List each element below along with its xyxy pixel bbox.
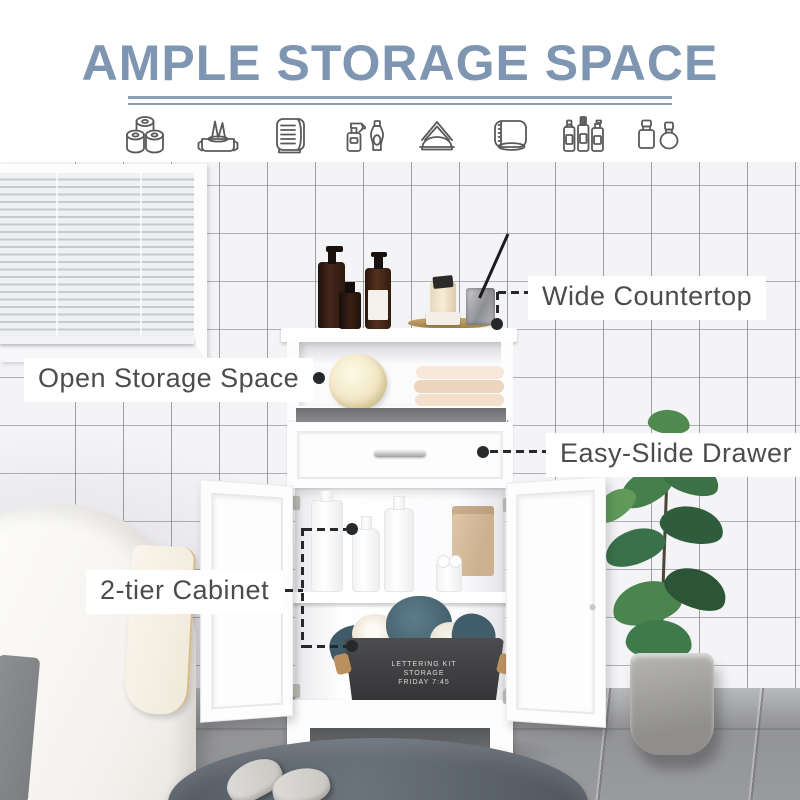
toilet-paper-icon (121, 112, 169, 160)
toiletry-bottles-icon (559, 112, 607, 160)
bottle-label (368, 290, 388, 320)
shelf-gap-shadow (296, 408, 506, 422)
candle-label (432, 275, 453, 289)
callout-dot-easy-slide-drawer (477, 446, 489, 458)
cream-loofah (329, 354, 387, 410)
white-pump-bottle (311, 500, 343, 592)
perfume-bottles-icon (632, 112, 680, 160)
folded-towel (416, 366, 504, 379)
storage-box-icon (267, 112, 315, 160)
hinge (292, 496, 300, 509)
page-title: AMPLE STORAGE SPACE (0, 34, 800, 92)
white-bottle (352, 528, 380, 592)
plant-pot (630, 653, 714, 755)
door-knob (590, 604, 596, 610)
blind-cord (56, 173, 58, 342)
countertop (281, 328, 517, 342)
product-photo: LETTERING KIT STORAGE FRIDAY 7:45 (0, 162, 800, 800)
callout-dot-two-tier-bottom (346, 640, 358, 652)
napkin-holder-icon (413, 112, 461, 160)
blind-rail (0, 336, 194, 344)
white-bottle (384, 508, 414, 592)
folded-towel (414, 380, 504, 393)
pump-nozzle (371, 252, 387, 257)
callout-easy-slide-drawer: Easy-Slide Drawer (546, 433, 800, 477)
blind-cord (140, 173, 142, 342)
callout-two-tier-cabinet: 2-tier Cabinet (86, 570, 283, 614)
pump-head (320, 490, 333, 502)
basket-stamp-line: LETTERING KIT (374, 660, 474, 669)
bottle-neck (393, 496, 405, 510)
callout-open-storage: Open Storage Space (24, 358, 313, 402)
callout-line-two-tier-cabinet (301, 528, 304, 648)
blind-slats (0, 173, 194, 342)
wet-wipes-icon (194, 112, 242, 160)
folded-towel (415, 394, 504, 406)
cleaning-bottles-icon (340, 112, 388, 160)
hinge (292, 684, 300, 697)
callout-line-wide-countertop (496, 292, 499, 320)
basket-stamp: LETTERING KIT STORAGE FRIDAY 7:45 (374, 660, 474, 687)
plant-leaf (600, 521, 669, 572)
callout-dot-wide-countertop (491, 318, 503, 330)
title-underline (128, 96, 672, 105)
basket-stamp-line: STORAGE (374, 669, 474, 678)
callout-dot-two-tier-top (346, 523, 358, 535)
basket-stamp-line: FRIDAY 7:45 (374, 678, 474, 687)
callout-line-wide-countertop (498, 291, 530, 294)
door-panel (516, 490, 594, 715)
bottle-neck (361, 516, 372, 530)
pump-neck (328, 250, 336, 264)
callout-line-easy-slide-drawer (490, 450, 546, 453)
feature-icon-row (0, 112, 800, 160)
callout-dot-open-storage (313, 372, 325, 384)
drawer-handle (374, 450, 426, 457)
small-amber-bottle (339, 292, 361, 329)
pump-neck (374, 256, 383, 269)
callout-wide-countertop: Wide Countertop (528, 276, 766, 320)
callout-line-two-tier-cabinet (304, 645, 346, 648)
soap-bar (426, 312, 460, 325)
bath-ball (449, 555, 462, 568)
cabinet-door-right (506, 476, 606, 728)
bottle-cap (345, 282, 355, 293)
window-blinds (0, 164, 207, 362)
folded-towel-icon (486, 112, 534, 160)
pump-nozzle (326, 246, 343, 252)
callout-line-two-tier-cabinet (304, 528, 346, 531)
